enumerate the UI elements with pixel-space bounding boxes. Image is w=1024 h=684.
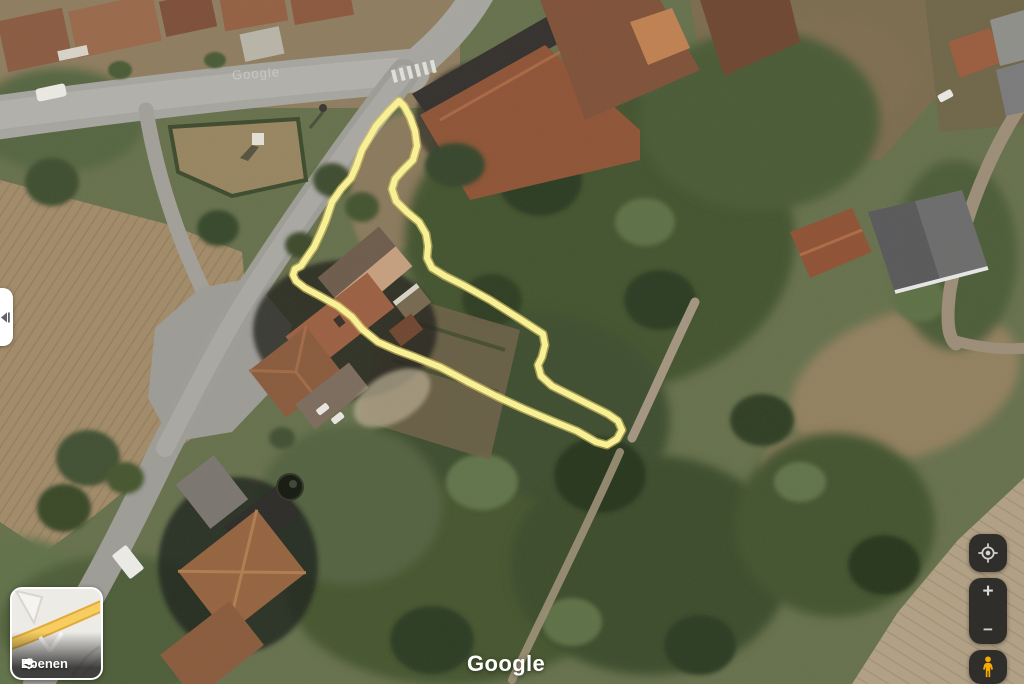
zoom-controls: + − (969, 578, 1007, 644)
my-location-button[interactable] (969, 534, 1007, 572)
zoom-out-button[interactable]: − (983, 623, 993, 637)
side-panel-toggle[interactable] (0, 288, 13, 346)
zoom-in-button[interactable]: + (982, 585, 993, 599)
street-view-pegman-button[interactable] (969, 650, 1007, 684)
photo-grain (0, 0, 1024, 684)
layers-icon (21, 656, 37, 672)
google-logo[interactable]: Google (467, 651, 545, 677)
pegman-icon (979, 656, 997, 678)
map-viewport[interactable]: Google Ebenen Google (0, 0, 1024, 684)
collapse-arrow-icon (1, 312, 10, 323)
my-location-icon (977, 542, 999, 564)
satellite-imagery[interactable] (0, 0, 1024, 684)
layers-button[interactable]: Ebenen (10, 587, 103, 680)
